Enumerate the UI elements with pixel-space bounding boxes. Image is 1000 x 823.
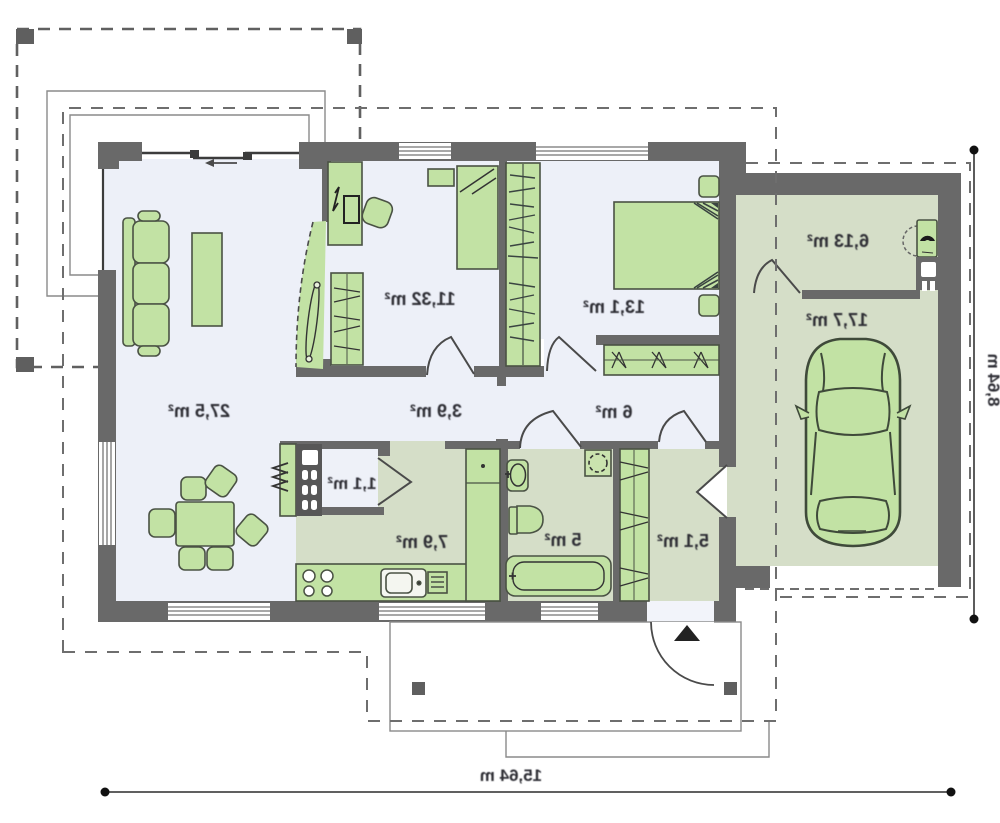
svg-text:6 m²: 6 m² <box>595 402 632 422</box>
svg-text:5,1 m²: 5,1 m² <box>657 531 709 551</box>
svg-text:11,32 m²: 11,32 m² <box>384 289 455 309</box>
svg-text:17,7 m²: 17,7 m² <box>806 310 868 330</box>
svg-text:15,64 m: 15,64 m <box>480 766 542 785</box>
svg-text:7,9 m²: 7,9 m² <box>396 532 448 552</box>
svg-text:13,1 m²: 13,1 m² <box>583 297 645 317</box>
svg-text:5 m²: 5 m² <box>544 530 581 550</box>
svg-text:3,9 m²: 3,9 m² <box>410 401 462 421</box>
svg-text:1,1 m²: 1,1 m² <box>327 474 376 493</box>
svg-text:27,5 m²: 27,5 m² <box>168 401 230 421</box>
svg-text:6,13 m²: 6,13 m² <box>807 231 869 251</box>
svg-text:8,64 m: 8,64 m <box>984 354 1000 407</box>
